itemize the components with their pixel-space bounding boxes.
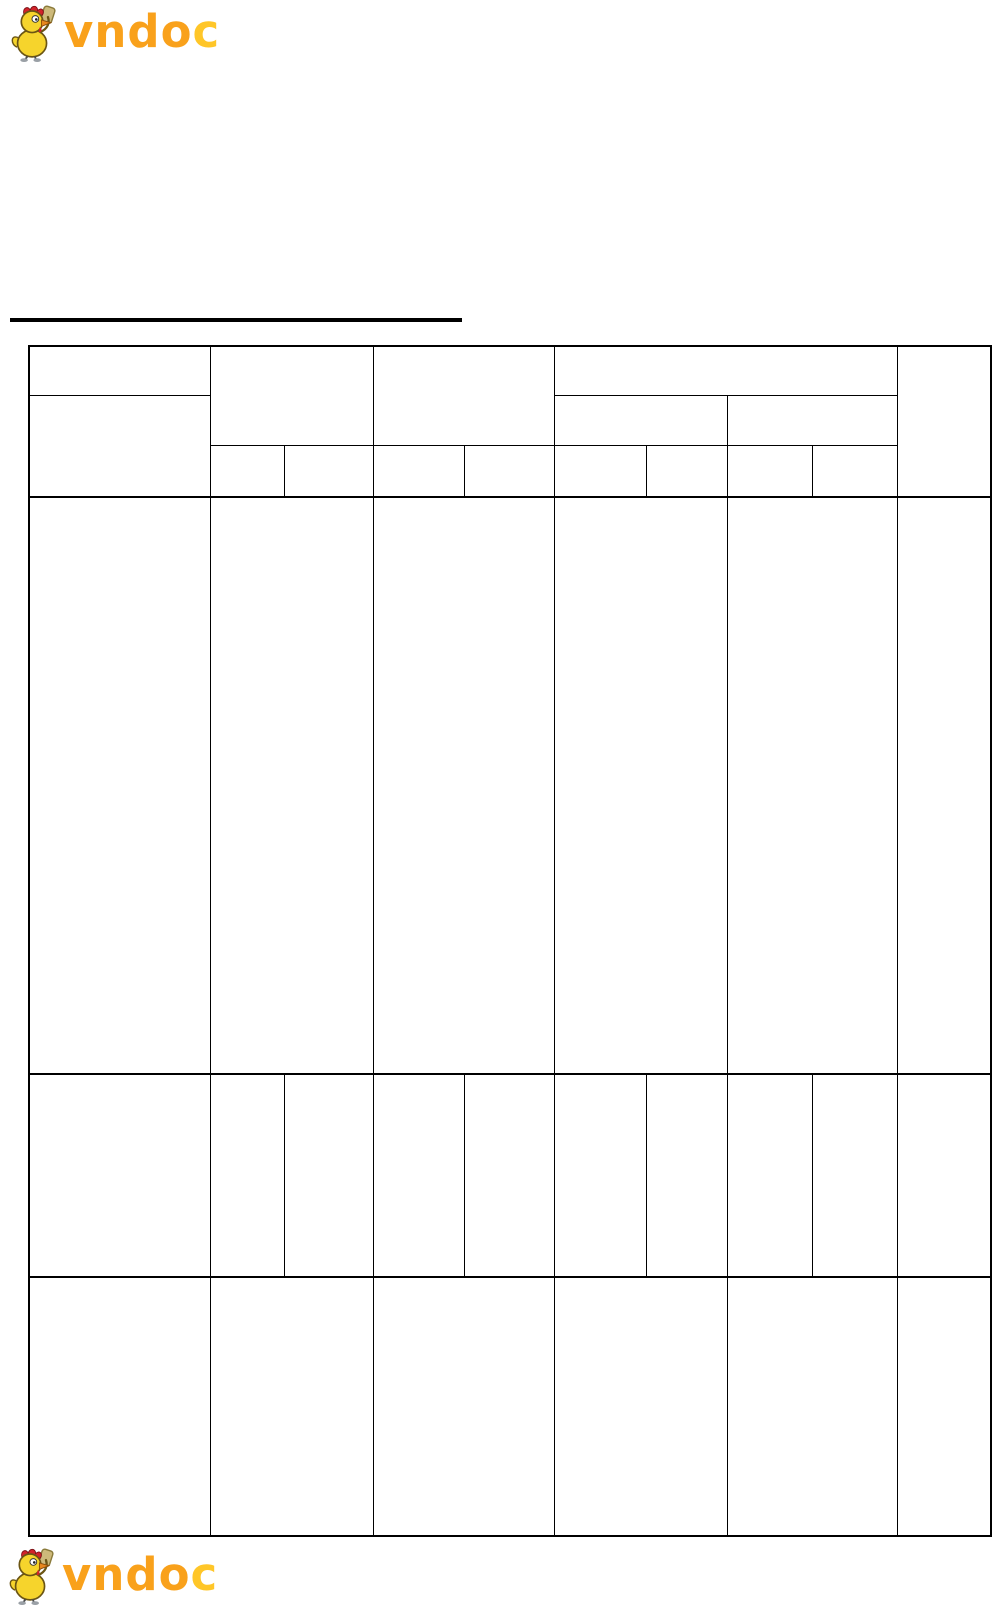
body-cell (897, 1074, 991, 1277)
body-cell (554, 497, 727, 1074)
body-cell (897, 497, 991, 1074)
header-leaf-cell (464, 445, 554, 497)
body-cell (897, 1277, 991, 1536)
header-cell-col4-group (554, 346, 897, 395)
body-cell (554, 1074, 646, 1277)
header-leaf-cell (284, 445, 373, 497)
body-cell (554, 1277, 727, 1536)
body-cell (29, 497, 210, 1074)
body-cell (727, 1277, 897, 1536)
header-leaf-cell (554, 445, 646, 497)
header-cell-col3-group (373, 346, 554, 445)
vndoc-logo-bottom: vndoc (4, 1547, 218, 1605)
body-cell (373, 1277, 554, 1536)
header-leaf-cell (727, 445, 812, 497)
logo-wordmark-main: vndo (64, 5, 193, 58)
logo-wordmark: vndoc (64, 9, 220, 58)
header-cell-col4-sub-b (727, 395, 897, 445)
header-row-1 (29, 346, 991, 395)
header-cell-col2-group (210, 346, 373, 445)
logo-wordmark: vndoc (62, 1552, 218, 1601)
body-row-3 (29, 1277, 991, 1536)
body-cell (464, 1074, 554, 1277)
logo-wordmark-accent: c (191, 1548, 219, 1601)
heading-underline (10, 318, 462, 322)
header-cell-col4-sub-a (554, 395, 727, 445)
body-cell (373, 497, 554, 1074)
header-leaf-cell (812, 445, 897, 497)
logo-wordmark-main: vndo (62, 1548, 191, 1601)
body-cell (727, 497, 897, 1074)
vndoc-logo-top: vndoc (6, 4, 220, 62)
body-cell (29, 1074, 210, 1277)
header-cell-col1-top (29, 346, 210, 395)
body-row-2 (29, 1074, 991, 1277)
body-cell (210, 1277, 373, 1536)
chicken-mascot-icon (4, 1547, 58, 1605)
blank-form-table (28, 345, 992, 1537)
chicken-mascot-icon (6, 4, 60, 62)
body-cell (812, 1074, 897, 1277)
header-cell-col5 (897, 346, 991, 497)
body-cell (210, 497, 373, 1074)
header-cell-col1-bottom (29, 395, 210, 497)
logo-wordmark-accent: c (193, 5, 221, 58)
body-cell (29, 1277, 210, 1536)
page: vndoc (0, 0, 993, 1608)
header-leaf-cell (373, 445, 464, 497)
body-row-1 (29, 497, 991, 1074)
body-cell (210, 1074, 284, 1277)
body-cell (284, 1074, 373, 1277)
body-cell (373, 1074, 464, 1277)
body-cell (646, 1074, 727, 1277)
header-leaf-cell (646, 445, 727, 497)
header-leaf-cell (210, 445, 284, 497)
body-cell (727, 1074, 812, 1277)
